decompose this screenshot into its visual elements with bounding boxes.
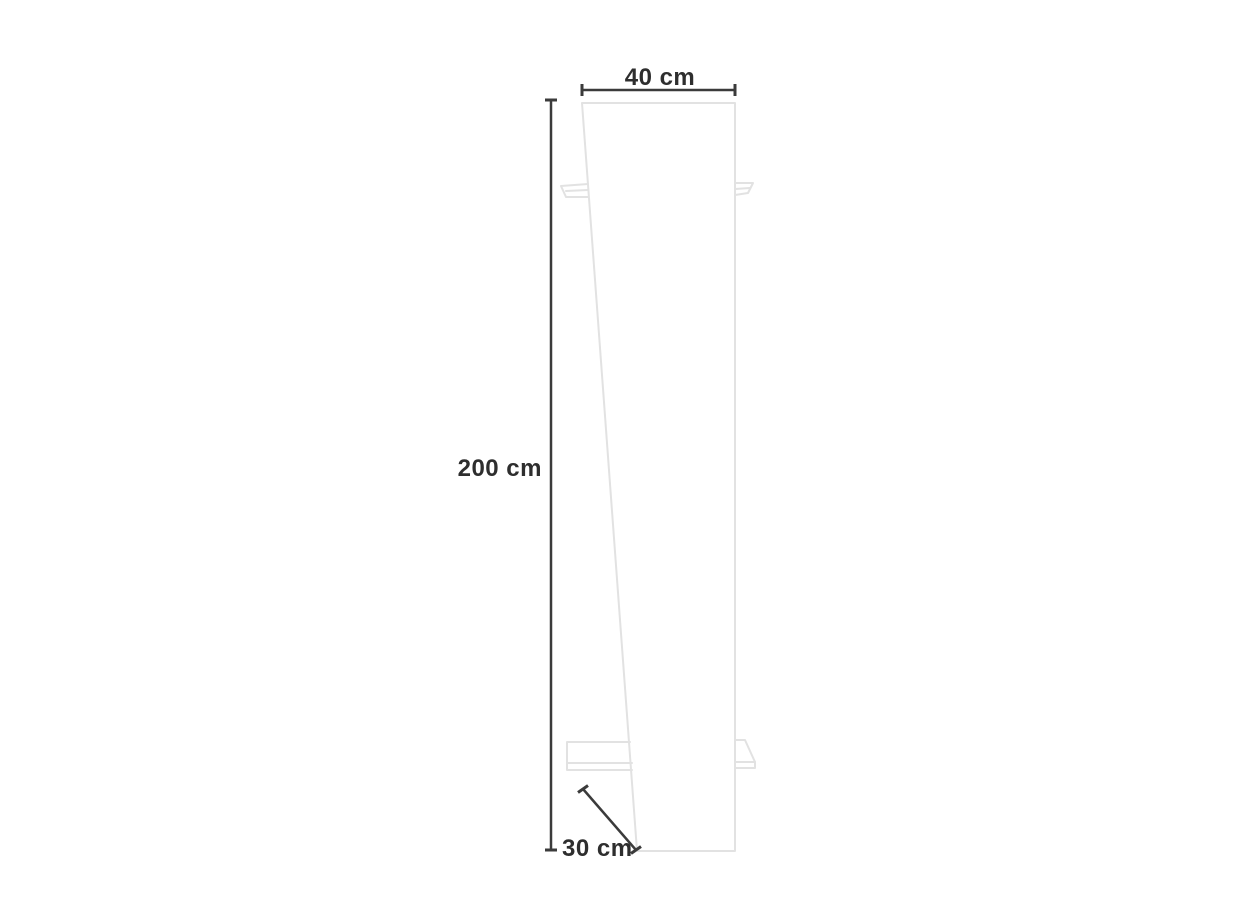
left-hook-notch (566, 190, 588, 191)
depth-label: 30 cm (562, 835, 633, 862)
diagram-canvas: 40 cm 200 cm 30 cm (0, 0, 1233, 924)
bottom-shelf-left (567, 742, 632, 770)
bottom-shelf-right (735, 740, 755, 768)
height-dimension-line (545, 100, 557, 850)
dimension-diagram: 40 cm 200 cm 30 cm (0, 0, 1233, 924)
height-label: 200 cm (458, 455, 542, 482)
width-label: 40 cm (625, 64, 696, 91)
panel-front-face (582, 103, 735, 851)
furniture-outline (561, 103, 755, 851)
right-hook-notch (735, 188, 750, 189)
